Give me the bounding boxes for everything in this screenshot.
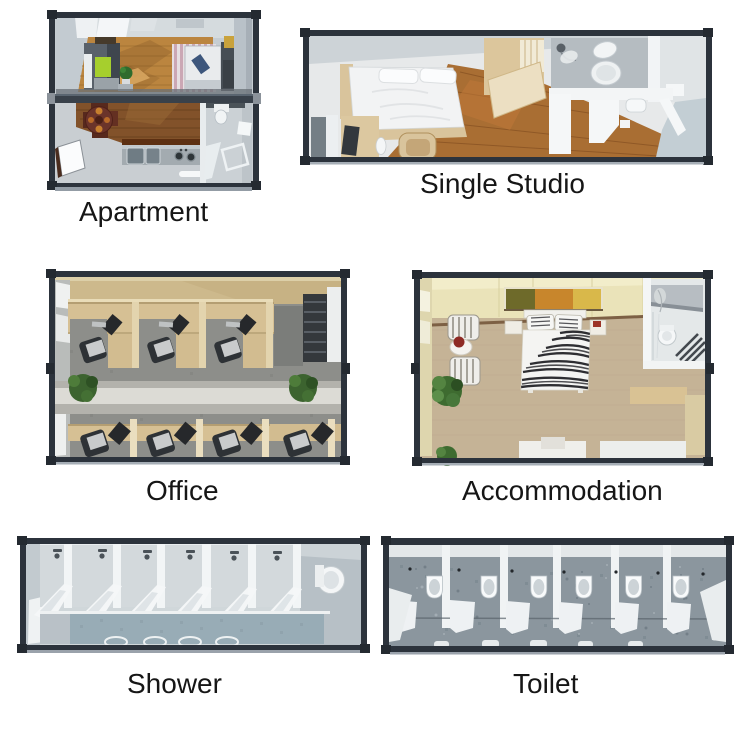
svg-text:Office: Office xyxy=(146,475,219,506)
svg-text:Single Studio: Single Studio xyxy=(420,168,585,199)
svg-text:Apartment: Apartment xyxy=(79,196,208,227)
svg-text:Accommodation: Accommodation xyxy=(462,475,663,506)
svg-text:Shower: Shower xyxy=(127,668,222,699)
svg-text:Toilet: Toilet xyxy=(513,668,579,699)
